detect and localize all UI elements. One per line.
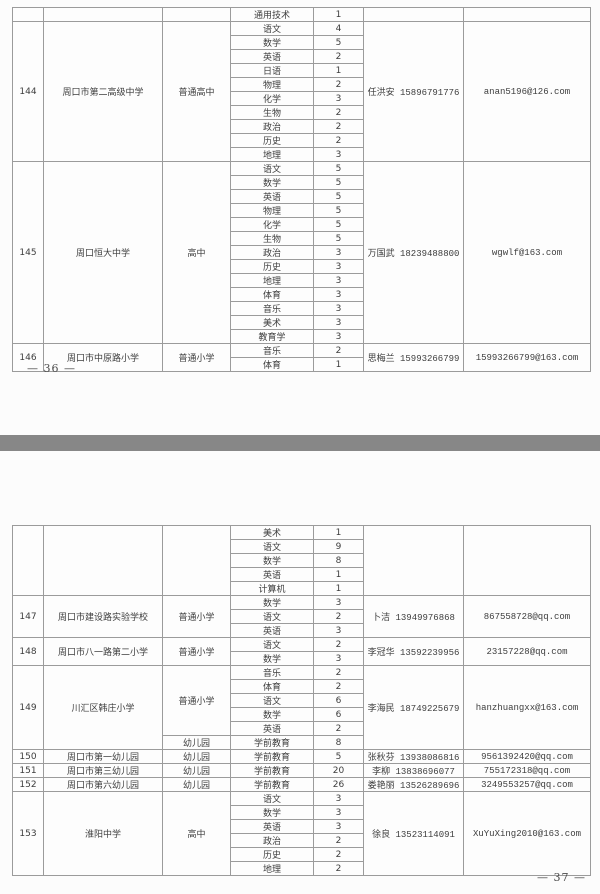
row-number-cell (13, 526, 44, 596)
subject-cell: 历史 (231, 848, 314, 862)
subject-cell: 生物 (231, 232, 314, 246)
email-cell: 23157228@qq.com (464, 638, 591, 666)
subject-cell: 政治 (231, 834, 314, 848)
row-number-cell: 148 (13, 638, 44, 666)
school-type-cell: 普通小学 (163, 596, 231, 638)
school-type-cell: 普通小学 (163, 666, 231, 736)
school-type-cell (163, 526, 231, 596)
email-cell: 867558728@qq.com (464, 596, 591, 638)
school-type-cell: 高中 (163, 792, 231, 876)
subject-count-cell: 26 (314, 778, 364, 792)
subject-count-cell: 1 (314, 8, 364, 22)
subject-count-cell: 1 (314, 582, 364, 596)
row-number-cell: 144 (13, 22, 44, 162)
email-cell: 9561392420@qq.com (464, 750, 591, 764)
subject-count-cell: 2 (314, 680, 364, 694)
row-number-cell: 149 (13, 666, 44, 750)
subject-cell: 美术 (231, 526, 314, 540)
email-cell: 3249553257@qq.com (464, 778, 591, 792)
subject-count-cell: 3 (314, 624, 364, 638)
subject-cell: 历史 (231, 260, 314, 274)
subject-count-cell: 3 (314, 260, 364, 274)
subject-cell: 语文 (231, 610, 314, 624)
subject-count-cell: 8 (314, 554, 364, 568)
email-cell (464, 526, 591, 596)
school-name-cell: 周口市建设路实验学校 (44, 596, 163, 638)
subject-count-cell: 3 (314, 148, 364, 162)
subject-count-cell: 2 (314, 106, 364, 120)
subject-count-cell: 3 (314, 316, 364, 330)
contact-cell (364, 526, 464, 596)
school-name-cell: 周口市八一路第二小学 (44, 638, 163, 666)
school-type-cell: 幼儿园 (163, 736, 231, 750)
email-cell: XuYuXing2010@163.com (464, 792, 591, 876)
subject-count-cell: 9 (314, 540, 364, 554)
table-row: 151周口市第三幼儿园幼儿园学前教育20李柳 13838696077755172… (13, 764, 591, 778)
subject-cell: 音乐 (231, 344, 314, 358)
row-number-cell (13, 8, 44, 22)
table-row: 153淮阳中学高中语文3徐良 13523114091XuYuXing2010@1… (13, 792, 591, 806)
school-type-cell: 幼儿园 (163, 778, 231, 792)
subject-cell: 体育 (231, 358, 314, 372)
subject-cell: 数学 (231, 176, 314, 190)
subject-cell: 生物 (231, 106, 314, 120)
table-row: 147周口市建设路实验学校普通小学数学3卜洁 13949976868867558… (13, 596, 591, 610)
subject-count-cell: 6 (314, 694, 364, 708)
subject-count-cell: 3 (314, 92, 364, 106)
subject-count-cell: 1 (314, 526, 364, 540)
subject-cell: 学前教育 (231, 778, 314, 792)
subject-count-cell: 5 (314, 750, 364, 764)
subject-cell: 地理 (231, 862, 314, 876)
recruitment-table-page-36: 通用技术1144周口市第二高级中学普通高中语文4任洪安 15896791776a… (12, 7, 591, 372)
subject-cell: 通用技术 (231, 8, 314, 22)
contact-cell: 徐良 13523114091 (364, 792, 464, 876)
subject-cell: 教育学 (231, 330, 314, 344)
row-number-cell: 145 (13, 162, 44, 344)
email-cell: 15993266799@163.com (464, 344, 591, 372)
subject-count-cell: 5 (314, 218, 364, 232)
subject-cell: 英语 (231, 568, 314, 582)
subject-count-cell: 2 (314, 50, 364, 64)
subject-cell: 英语 (231, 50, 314, 64)
subject-count-cell: 3 (314, 806, 364, 820)
contact-cell (364, 8, 464, 22)
subject-cell: 地理 (231, 274, 314, 288)
school-type-cell (163, 8, 231, 22)
subject-count-cell: 2 (314, 134, 364, 148)
email-cell: 755172318@qq.com (464, 764, 591, 778)
school-name-cell: 周口市第一幼儿园 (44, 750, 163, 764)
email-cell: anan5196@126.com (464, 22, 591, 162)
subject-cell: 物理 (231, 78, 314, 92)
subject-count-cell: 2 (314, 610, 364, 624)
school-name-cell: 川汇区韩庄小学 (44, 666, 163, 750)
table-row: 美术1 (13, 526, 591, 540)
contact-cell: 娄艳丽 13526289696 (364, 778, 464, 792)
subject-count-cell: 5 (314, 36, 364, 50)
recruitment-table-page-37: 美术1语文9数学8英语1计算机1147周口市建设路实验学校普通小学数学3卜洁 1… (12, 525, 591, 876)
subject-count-cell: 2 (314, 862, 364, 876)
row-number-cell: 151 (13, 764, 44, 778)
subject-cell: 体育 (231, 288, 314, 302)
subject-count-cell: 3 (314, 820, 364, 834)
subject-count-cell: 5 (314, 190, 364, 204)
subject-count-cell: 2 (314, 344, 364, 358)
row-number-cell: 152 (13, 778, 44, 792)
school-type-cell: 幼儿园 (163, 764, 231, 778)
subject-count-cell: 2 (314, 848, 364, 862)
email-cell: hanzhuangxx@163.com (464, 666, 591, 750)
email-cell: wgwlf@163.com (464, 162, 591, 344)
contact-cell: 李柳 13838696077 (364, 764, 464, 778)
subject-count-cell: 3 (314, 274, 364, 288)
school-name-cell: 淮阳中学 (44, 792, 163, 876)
table-row: 146周口市中原路小学普通小学音乐2思梅兰 159932667991599326… (13, 344, 591, 358)
subject-cell: 美术 (231, 316, 314, 330)
subject-count-cell: 6 (314, 708, 364, 722)
subject-cell: 政治 (231, 120, 314, 134)
row-number-cell: 147 (13, 596, 44, 638)
subject-cell: 日语 (231, 64, 314, 78)
page-number-37: — 37 — (537, 871, 586, 884)
subject-cell: 英语 (231, 190, 314, 204)
contact-cell: 卜洁 13949976868 (364, 596, 464, 638)
school-type-cell: 普通高中 (163, 22, 231, 162)
subject-cell: 历史 (231, 134, 314, 148)
scanned-document-canvas: 通用技术1144周口市第二高级中学普通高中语文4任洪安 15896791776a… (0, 0, 600, 894)
subject-count-cell: 2 (314, 834, 364, 848)
subject-cell: 语文 (231, 792, 314, 806)
subject-cell: 数学 (231, 708, 314, 722)
subject-count-cell: 2 (314, 722, 364, 736)
subject-cell: 政治 (231, 246, 314, 260)
table-row: 152周口市第六幼儿园幼儿园学前教育26娄艳丽 1352628969632495… (13, 778, 591, 792)
subject-count-cell: 1 (314, 568, 364, 582)
subject-count-cell: 2 (314, 78, 364, 92)
subject-cell: 语文 (231, 638, 314, 652)
subject-count-cell: 5 (314, 232, 364, 246)
subject-cell: 体育 (231, 680, 314, 694)
table-row: 148周口市八一路第二小学普通小学语文2李冠华 1359223995623157… (13, 638, 591, 652)
subject-cell: 语文 (231, 162, 314, 176)
row-number-cell: 153 (13, 792, 44, 876)
subject-count-cell: 4 (314, 22, 364, 36)
contact-cell: 任洪安 15896791776 (364, 22, 464, 162)
subject-count-cell: 2 (314, 638, 364, 652)
contact-cell: 思梅兰 15993266799 (364, 344, 464, 372)
contact-cell: 李冠华 13592239956 (364, 638, 464, 666)
subject-count-cell: 3 (314, 246, 364, 260)
email-cell (464, 8, 591, 22)
subject-count-cell: 3 (314, 288, 364, 302)
school-type-cell: 普通小学 (163, 638, 231, 666)
school-name-cell (44, 8, 163, 22)
contact-cell: 张秋芬 13938086816 (364, 750, 464, 764)
subject-count-cell: 3 (314, 596, 364, 610)
subject-cell: 音乐 (231, 302, 314, 316)
subject-cell: 数学 (231, 596, 314, 610)
subject-cell: 数学 (231, 554, 314, 568)
page-divider-bar (0, 435, 600, 451)
table-row: 145周口恒大中学高中语文5万国武 18239488800wgwlf@163.c… (13, 162, 591, 176)
school-name-cell: 周口市第三幼儿园 (44, 764, 163, 778)
school-name-cell: 周口市第二高级中学 (44, 22, 163, 162)
table-row: 149川汇区韩庄小学普通小学音乐2李海民 18749225679hanzhuan… (13, 666, 591, 680)
subject-cell: 语文 (231, 22, 314, 36)
subject-cell: 学前教育 (231, 764, 314, 778)
subject-cell: 学前教育 (231, 750, 314, 764)
subject-count-cell: 3 (314, 330, 364, 344)
subject-cell: 学前教育 (231, 736, 314, 750)
table-row: 150周口市第一幼儿园幼儿园学前教育5张秋芬 13938086816956139… (13, 750, 591, 764)
subject-cell: 音乐 (231, 666, 314, 680)
subject-cell: 化学 (231, 92, 314, 106)
subject-cell: 语文 (231, 694, 314, 708)
subject-count-cell: 1 (314, 64, 364, 78)
subject-cell: 数学 (231, 36, 314, 50)
row-number-cell: 150 (13, 750, 44, 764)
subject-count-cell: 2 (314, 666, 364, 680)
subject-cell: 英语 (231, 722, 314, 736)
subject-count-cell: 5 (314, 162, 364, 176)
subject-count-cell: 3 (314, 302, 364, 316)
subject-count-cell: 20 (314, 764, 364, 778)
contact-cell: 李海民 18749225679 (364, 666, 464, 750)
subject-cell: 物理 (231, 204, 314, 218)
school-type-cell: 普通小学 (163, 344, 231, 372)
subject-count-cell: 5 (314, 204, 364, 218)
subject-cell: 地理 (231, 148, 314, 162)
subject-cell: 数学 (231, 652, 314, 666)
contact-cell: 万国武 18239488800 (364, 162, 464, 344)
table-row: 通用技术1 (13, 8, 591, 22)
school-name-cell: 周口恒大中学 (44, 162, 163, 344)
subject-cell: 语文 (231, 540, 314, 554)
school-name-cell: 周口市第六幼儿园 (44, 778, 163, 792)
school-name-cell (44, 526, 163, 596)
subject-cell: 英语 (231, 624, 314, 638)
subject-count-cell: 3 (314, 792, 364, 806)
subject-count-cell: 1 (314, 358, 364, 372)
subject-cell: 化学 (231, 218, 314, 232)
school-type-cell: 幼儿园 (163, 750, 231, 764)
subject-count-cell: 8 (314, 736, 364, 750)
school-type-cell: 高中 (163, 162, 231, 344)
subject-count-cell: 3 (314, 652, 364, 666)
table-row: 144周口市第二高级中学普通高中语文4任洪安 15896791776anan51… (13, 22, 591, 36)
page-number-36: — 36 — (27, 362, 76, 375)
subject-cell: 英语 (231, 820, 314, 834)
subject-count-cell: 5 (314, 176, 364, 190)
subject-count-cell: 2 (314, 120, 364, 134)
subject-cell: 计算机 (231, 582, 314, 596)
subject-cell: 数学 (231, 806, 314, 820)
